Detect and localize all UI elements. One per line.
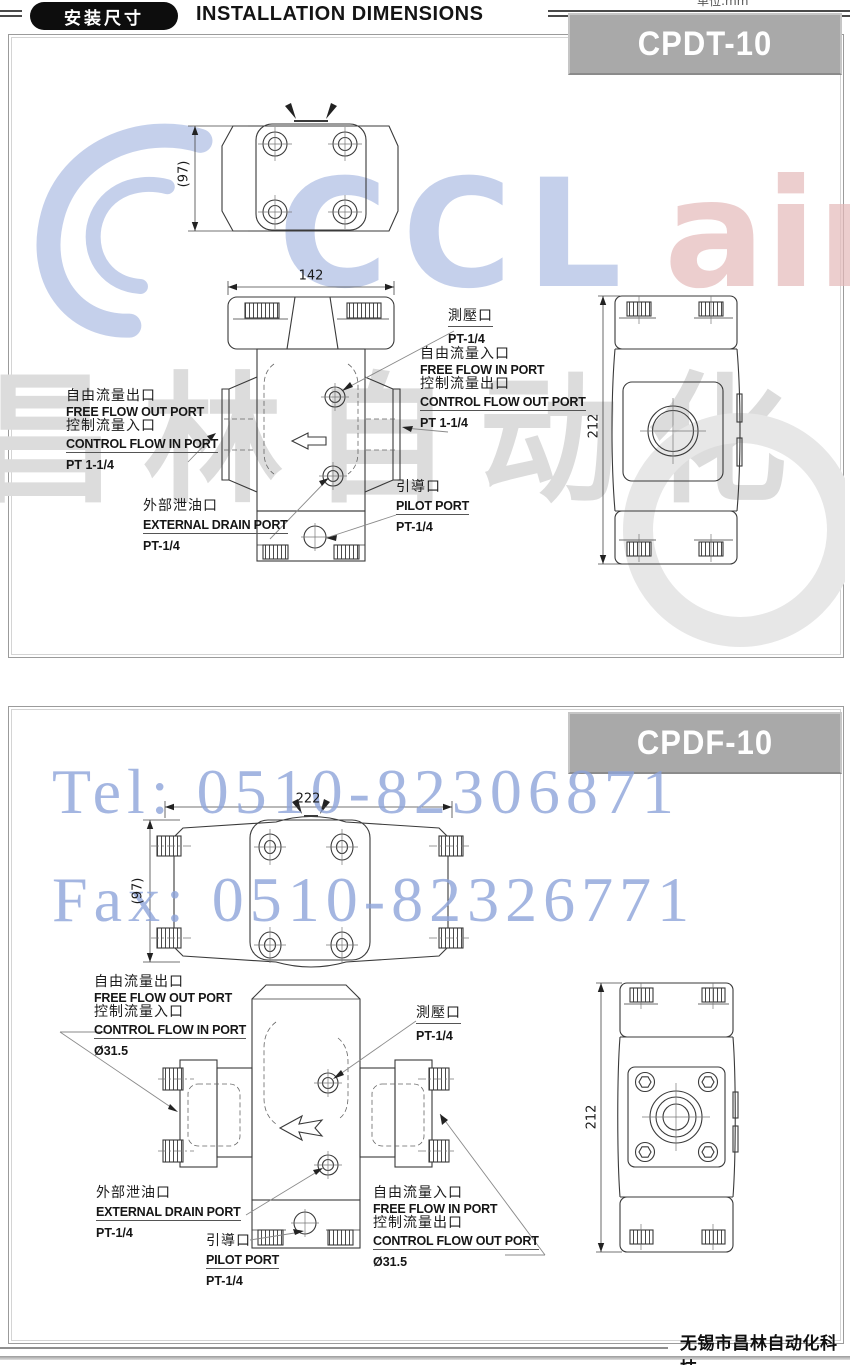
catalog-page: 安装尺寸 INSTALLATION DIMENSIONS 单位:mm CPDT-… bbox=[0, 0, 850, 1365]
label-cpdt10-free-flow-in: 自由流量入口 FREE FLOW IN PORT 控制流量出口 CONTROL … bbox=[420, 347, 586, 430]
label-text: 測壓口 bbox=[448, 309, 493, 327]
label-text: 控制流量入口 bbox=[94, 1005, 246, 1021]
header-rule-right-top bbox=[548, 10, 850, 12]
label-port-size: PT 1-1/4 bbox=[420, 416, 586, 430]
dim-depth-cpdt10: (97) bbox=[177, 161, 192, 188]
dim-depth-cpdf10: (97) bbox=[131, 878, 146, 905]
label-text: 自由流量入口 bbox=[373, 1186, 539, 1202]
label-text: FREE FLOW IN PORT bbox=[420, 363, 586, 377]
label-text: 控制流量出口 bbox=[420, 377, 586, 393]
label-cpdt10-free-flow-out: 自由流量出口 FREE FLOW OUT PORT 控制流量入口 CONTROL… bbox=[66, 389, 218, 472]
label-text: 測壓口 bbox=[416, 1006, 461, 1024]
label-text: CONTROL FLOW IN PORT bbox=[94, 1023, 246, 1039]
label-text: FREE FLOW OUT PORT bbox=[94, 991, 246, 1005]
footer-company: 无锡市昌林自动化科技 bbox=[680, 1329, 850, 1365]
footer-rule-left bbox=[0, 1347, 668, 1349]
label-cpdf10-gauge-port: 測壓口 PT-1/4 bbox=[416, 1003, 461, 1043]
model-name-cpdt10: CPDT-10 bbox=[638, 24, 772, 64]
label-text: CONTROL FLOW OUT PORT bbox=[373, 1234, 539, 1250]
label-text: 自由流量入口 bbox=[420, 347, 586, 363]
label-port-size: PT 1-1/4 bbox=[66, 458, 218, 472]
header-badge-text: 安装尺寸 bbox=[64, 4, 144, 29]
model-banner-cpdf10: CPDF-10 bbox=[568, 712, 842, 774]
cpdt10-side-view bbox=[612, 296, 742, 564]
label-port-size: Ø31.5 bbox=[373, 1255, 539, 1269]
label-port-size: PT-1/4 bbox=[448, 332, 493, 346]
label-text: PILOT PORT bbox=[206, 1253, 279, 1269]
cpdf10-top-view bbox=[151, 799, 469, 967]
label-port-size: PT-1/4 bbox=[206, 1274, 279, 1288]
page-title: INSTALLATION DIMENSIONS bbox=[196, 3, 483, 26]
dim-height-cpdf10: 212 bbox=[585, 1105, 600, 1130]
cpdt10-drawing bbox=[8, 34, 842, 656]
label-text: 控制流量出口 bbox=[373, 1216, 539, 1232]
label-cpdf10-free-flow-out: 自由流量出口 FREE FLOW OUT PORT 控制流量入口 CONTROL… bbox=[94, 975, 246, 1058]
label-text: CONTROL FLOW OUT PORT bbox=[420, 395, 586, 411]
label-text: EXTERNAL DRAIN PORT bbox=[143, 518, 288, 534]
label-text: 自由流量出口 bbox=[94, 975, 246, 991]
cpdt10-depth-dim bbox=[188, 126, 248, 231]
cpdf10-side-view bbox=[618, 983, 738, 1252]
dim-width-cpdf10: 222 bbox=[296, 792, 321, 807]
label-text: CONTROL FLOW IN PORT bbox=[66, 437, 218, 453]
label-text: 外部泄油口 bbox=[96, 1186, 241, 1202]
header-rule-left-top bbox=[0, 10, 22, 12]
label-text: 外部泄油口 bbox=[143, 499, 288, 515]
label-port-size: PT-1/4 bbox=[143, 539, 288, 553]
unit-note: 单位:mm bbox=[697, 0, 847, 7]
model-banner-cpdt10: CPDT-10 bbox=[568, 13, 842, 75]
header-rule-left-bottom bbox=[0, 15, 22, 17]
dim-width-cpdt10: 142 bbox=[299, 269, 324, 284]
label-text: 自由流量出口 bbox=[66, 389, 218, 405]
label-cpdf10-pilot-port: 引導口 PILOT PORT PT-1/4 bbox=[206, 1234, 279, 1288]
model-name-cpdf10: CPDF-10 bbox=[637, 723, 773, 763]
dim-height-cpdt10: 212 bbox=[587, 414, 602, 439]
header-badge: 安装尺寸 bbox=[30, 2, 178, 30]
cpdt10-top-view bbox=[222, 103, 398, 231]
label-text: PILOT PORT bbox=[396, 499, 469, 515]
label-text: 控制流量入口 bbox=[66, 419, 218, 435]
label-cpdt10-gauge-port: 測壓口 PT-1/4 bbox=[448, 306, 493, 346]
label-text: FREE FLOW IN PORT bbox=[373, 1202, 539, 1216]
label-text: FREE FLOW OUT PORT bbox=[66, 405, 218, 419]
label-port-size: PT-1/4 bbox=[396, 520, 469, 534]
label-text: 引導口 bbox=[396, 480, 469, 496]
label-cpdt10-external-drain: 外部泄油口 EXTERNAL DRAIN PORT PT-1/4 bbox=[143, 499, 288, 553]
label-cpdf10-free-flow-in: 自由流量入口 FREE FLOW IN PORT 控制流量出口 CONTROL … bbox=[373, 1186, 539, 1269]
unit-note-text: 单位:mm bbox=[697, 0, 847, 7]
label-text: EXTERNAL DRAIN PORT bbox=[96, 1205, 241, 1221]
label-cpdf10-external-drain: 外部泄油口 EXTERNAL DRAIN PORT PT-1/4 bbox=[96, 1186, 241, 1240]
label-text: 引導口 bbox=[206, 1234, 279, 1250]
label-cpdt10-pilot-port: 引導口 PILOT PORT PT-1/4 bbox=[396, 480, 469, 534]
label-port-size: Ø31.5 bbox=[94, 1044, 246, 1058]
label-port-size: PT-1/4 bbox=[416, 1029, 461, 1043]
